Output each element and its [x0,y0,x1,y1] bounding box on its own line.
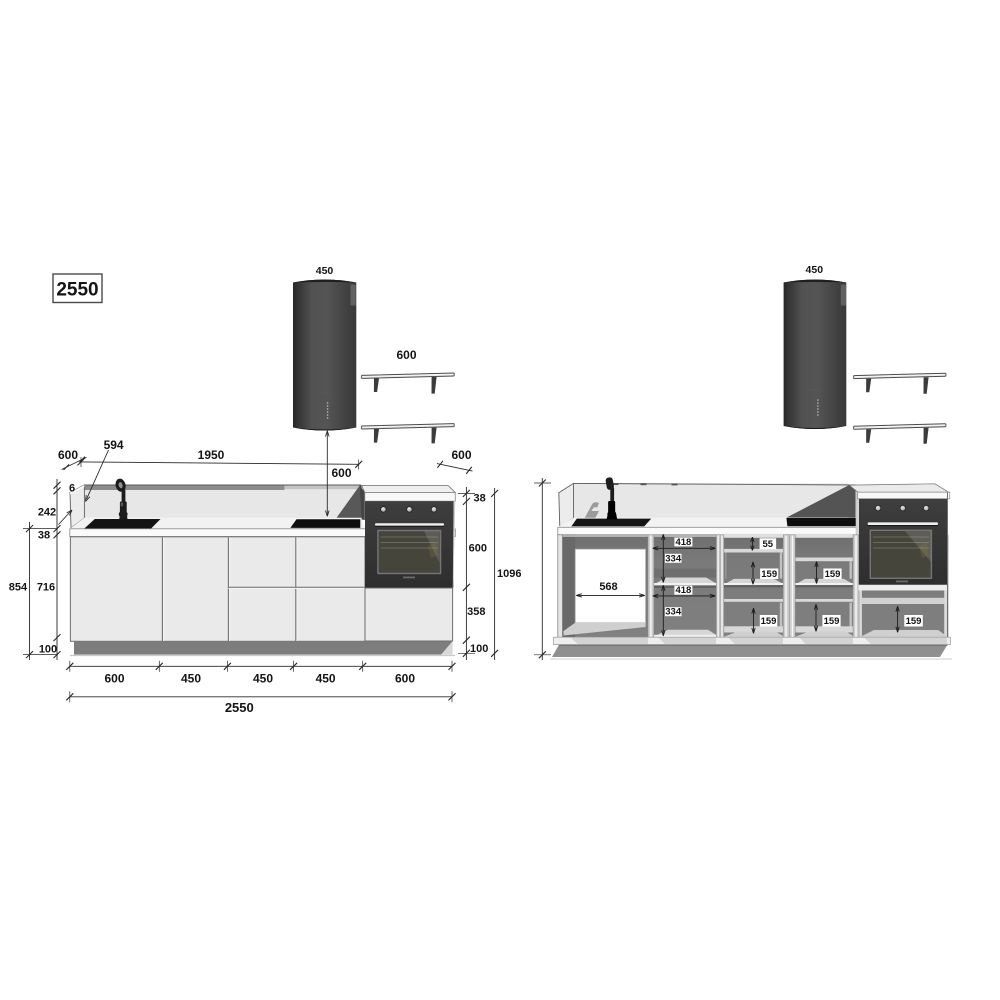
svg-text:334: 334 [665,607,682,618]
svg-text:600: 600 [396,348,416,362]
svg-text:600: 600 [469,543,487,555]
svg-text:242: 242 [38,506,56,518]
svg-text:358: 358 [467,606,485,618]
svg-text:2550: 2550 [225,700,254,715]
svg-text:2550: 2550 [56,280,98,301]
svg-text:568: 568 [599,581,617,593]
svg-text:450: 450 [253,672,273,686]
svg-text:159: 159 [906,616,922,627]
svg-text:450: 450 [316,672,336,686]
svg-text:1096: 1096 [497,568,521,580]
svg-text:6: 6 [69,482,75,494]
svg-text:159: 159 [761,616,777,627]
svg-text:600: 600 [451,448,471,462]
svg-text:594: 594 [104,438,124,452]
svg-text:418: 418 [675,585,691,596]
svg-text:100: 100 [39,643,57,655]
svg-text:450: 450 [806,264,824,276]
svg-text:159: 159 [761,569,777,580]
svg-text:159: 159 [825,569,841,580]
svg-text:159: 159 [824,616,840,627]
svg-text:600: 600 [332,466,352,480]
svg-text:100: 100 [470,643,488,655]
svg-text:716: 716 [37,581,55,593]
svg-text:600: 600 [104,672,124,686]
svg-text:38: 38 [38,530,50,542]
svg-text:854: 854 [9,582,28,594]
svg-text:55: 55 [763,539,774,550]
svg-text:418: 418 [675,537,691,548]
svg-text:600: 600 [58,448,78,462]
svg-text:450: 450 [181,672,201,686]
svg-text:334: 334 [665,553,682,564]
svg-text:600: 600 [395,672,415,686]
svg-text:1950: 1950 [198,448,225,462]
svg-text:38: 38 [473,493,485,505]
svg-text:450: 450 [316,265,334,277]
